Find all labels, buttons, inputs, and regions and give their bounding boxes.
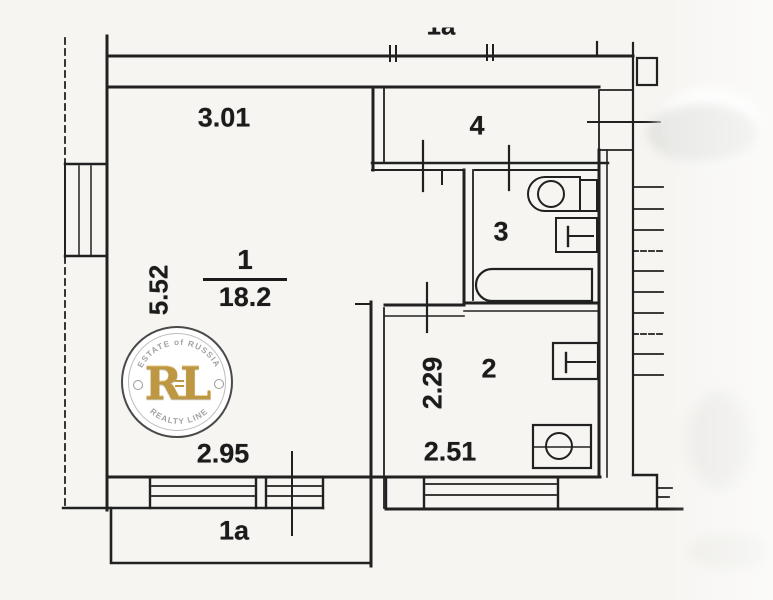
- room2-label: 2: [481, 354, 496, 385]
- door-ticks: [423, 141, 509, 191]
- dimension-left: 5.52: [144, 265, 175, 316]
- kitchen-window-icon: [386, 477, 558, 509]
- agency-watermark: ESTATE of RUSSIA REALTY LINE RL: [121, 326, 233, 438]
- kitchen-sink-icon: [553, 343, 598, 379]
- staircase-icon: [633, 187, 672, 497]
- entry-and-right-wall: [390, 45, 660, 477]
- room1-fraction-rule: [203, 278, 287, 281]
- top-wall-ticks: [390, 45, 493, 61]
- watermark-right-dot: [214, 379, 224, 389]
- stove-icon: [533, 425, 591, 468]
- floorplan-drawing: [0, 0, 773, 600]
- dimension-top: 3.01: [198, 103, 251, 134]
- room1-label: 1 18.2: [203, 244, 287, 312]
- left-window-icon: [65, 163, 107, 257]
- toilet-icon: [528, 177, 597, 211]
- room1-number: 1: [203, 244, 287, 276]
- room4-label: 4: [469, 111, 484, 142]
- bathroom-sink-icon: [556, 218, 597, 252]
- dimension-kitchen-width: 2.29: [418, 357, 449, 410]
- room3-label: 3: [493, 217, 508, 248]
- room1-area: 18.2: [203, 282, 287, 312]
- dimension-bottom: 2.95: [197, 439, 250, 470]
- bathtub-icon: [476, 269, 592, 301]
- balcony-label: 1a: [219, 516, 249, 547]
- watermark-left-dot: [133, 380, 143, 390]
- pillar: [637, 58, 657, 85]
- dimension-kitchen-bottom: 2.51: [424, 437, 477, 468]
- floorplan-scan: 1a 3.01 5.52 1 18.2 2.95 1a 4 3 2 2.29 2…: [0, 0, 773, 600]
- watermark-equals-mark: [175, 380, 184, 390]
